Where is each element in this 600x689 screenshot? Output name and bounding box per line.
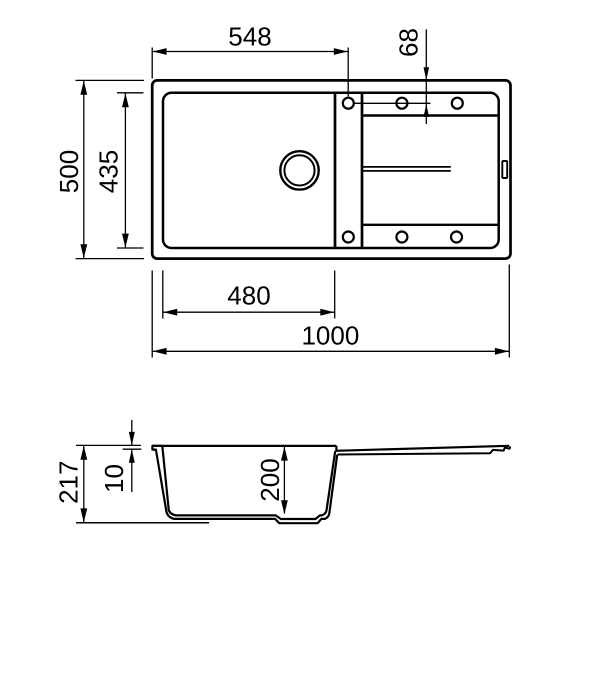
svg-text:435: 435 — [94, 150, 124, 193]
svg-text:200: 200 — [255, 458, 285, 501]
svg-text:10: 10 — [99, 464, 129, 493]
svg-text:500: 500 — [54, 150, 84, 193]
svg-text:1000: 1000 — [301, 321, 359, 351]
svg-text:480: 480 — [227, 281, 270, 311]
svg-text:217: 217 — [54, 461, 84, 504]
svg-text:548: 548 — [228, 22, 271, 52]
svg-text:68: 68 — [394, 28, 424, 57]
